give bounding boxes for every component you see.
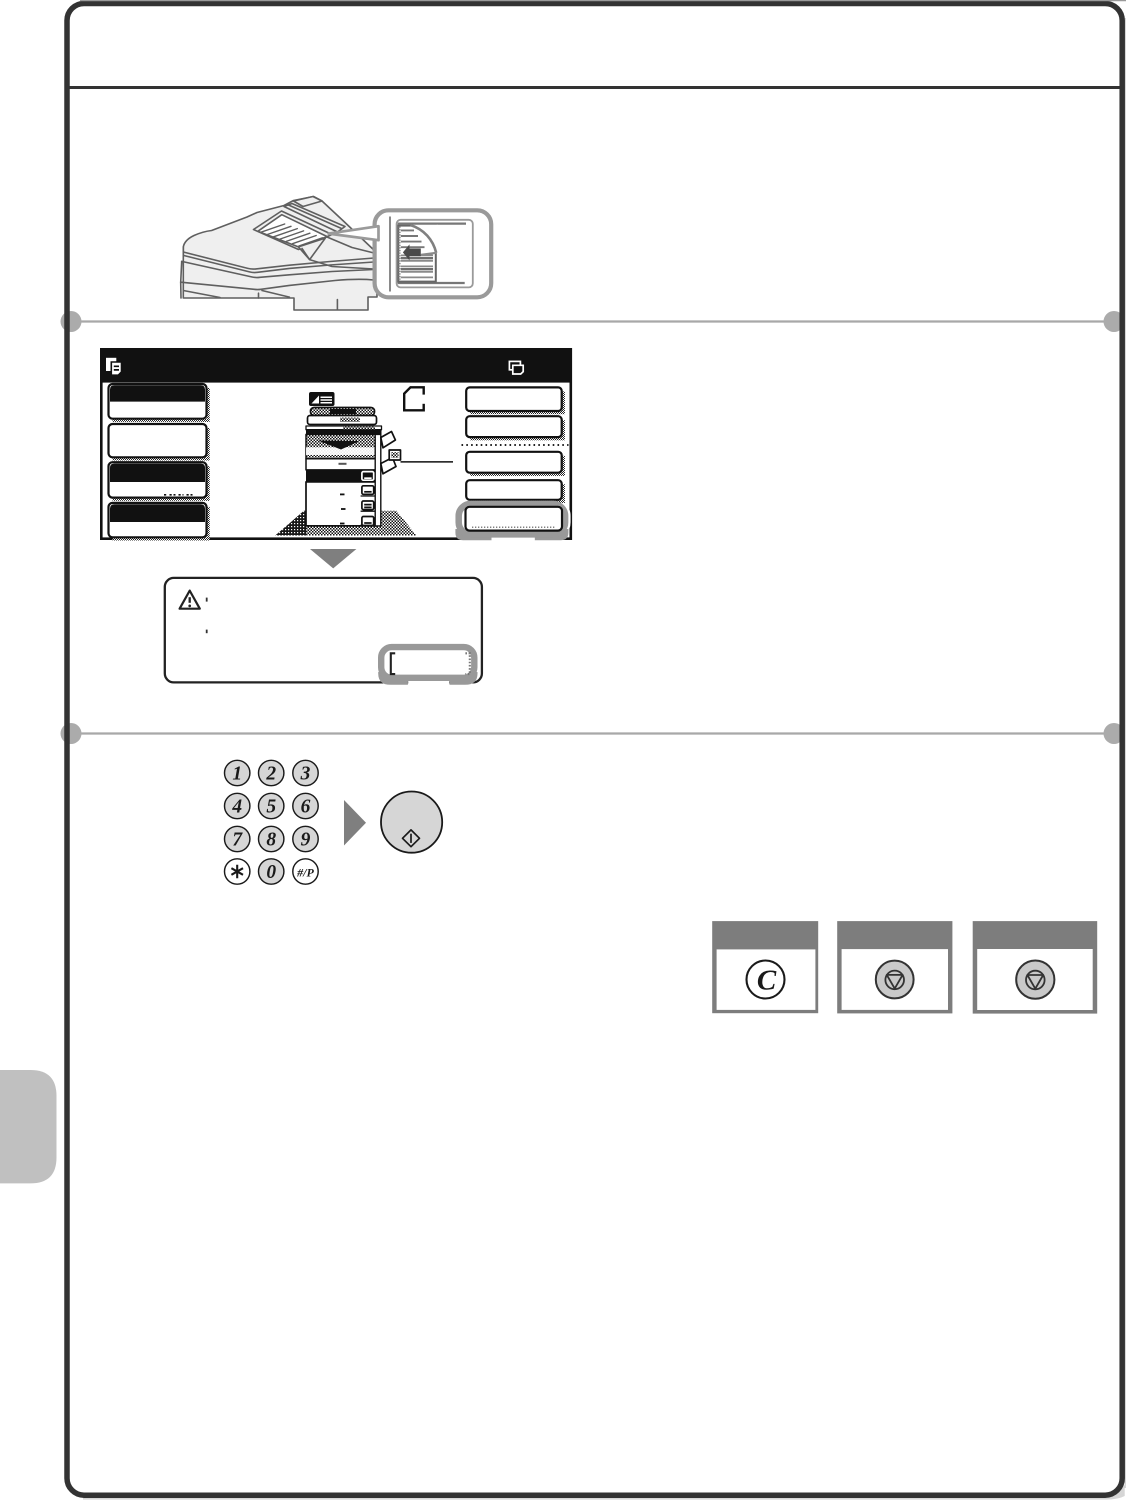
svg-text:4: 4	[231, 797, 242, 818]
svg-text:9: 9	[301, 830, 311, 851]
svg-text:3: 3	[300, 764, 311, 785]
svg-text:2: 2	[265, 764, 276, 785]
svg-text:0: 0	[266, 862, 276, 883]
svg-text:C: C	[757, 965, 777, 997]
svg-text:1: 1	[232, 764, 242, 785]
svg-text:5: 5	[266, 797, 276, 818]
svg-text:6: 6	[301, 797, 311, 818]
svg-text:7: 7	[232, 830, 243, 851]
svg-text:#/P: #/P	[296, 865, 314, 879]
svg-text:8: 8	[266, 830, 276, 851]
